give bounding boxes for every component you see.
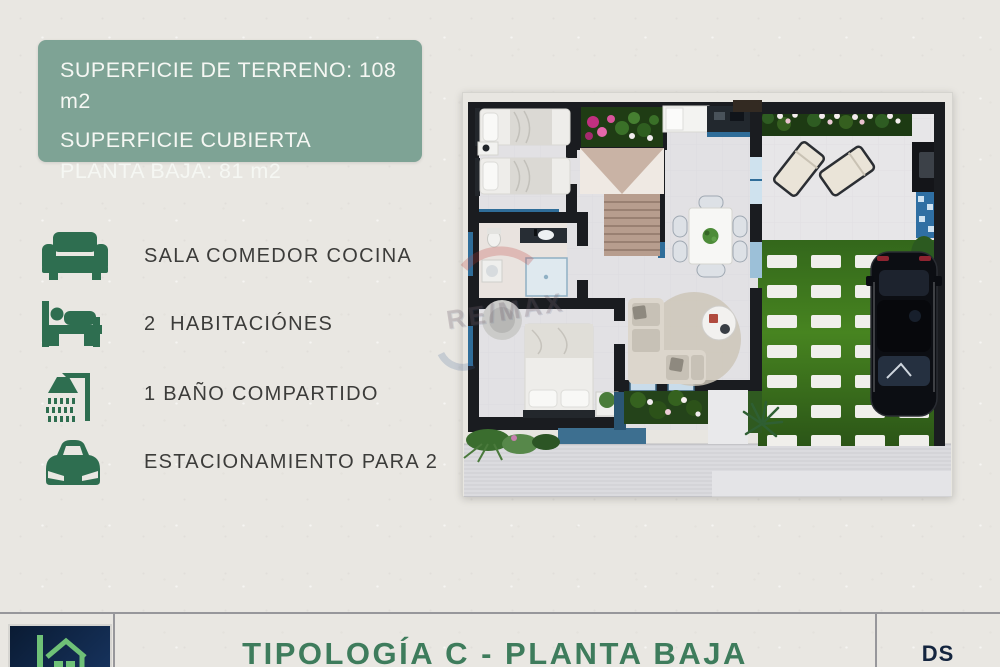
living-room <box>628 292 741 386</box>
floor-plan-image <box>462 92 953 497</box>
terrain-surface-text: SUPERFICIE DE TERRENO: 108 m2 <box>60 55 400 116</box>
footer-initials: DS <box>876 641 1000 667</box>
sidewalk <box>464 444 951 497</box>
company-logo <box>8 624 112 667</box>
feature-label: 2 HABITACIÓNES <box>144 313 333 336</box>
flyer-page: SUPERFICIE DE TERRENO: 108 m2 SUPERFICIE… <box>0 0 1000 667</box>
sofa-icon <box>40 230 116 282</box>
typology-title: TIPOLOGÍA C - PLANTA BAJA <box>114 636 876 667</box>
shower-icon <box>40 363 116 425</box>
covered-surface-text: SUPERFICIE CUBIERTA PLANTA BAJA: 81 m2 <box>60 125 400 186</box>
outdoor-counter <box>916 192 936 238</box>
feature-label: 1 BAÑO COMPARTIDO <box>144 383 379 406</box>
bed-icon <box>40 299 116 349</box>
footer-divider <box>0 612 1000 614</box>
feature-row-bathroom: 1 BAÑO COMPARTIDO <box>40 362 379 426</box>
feature-label: SALA COMEDOR COCINA <box>144 245 412 268</box>
feature-row-parking: ESTACIONAMIENTO PARA 2 <box>40 434 438 490</box>
house-logo-icon <box>29 631 91 667</box>
feature-label: ESTACIONAMIENTO PARA 2 <box>144 451 438 474</box>
interior-planter <box>581 107 663 147</box>
car-icon <box>40 437 116 487</box>
floor-plan-rendering <box>462 92 953 497</box>
feature-row-bedrooms: 2 HABITACIÓNES <box>40 296 333 352</box>
parked-car <box>866 252 942 416</box>
surface-info-box: SUPERFICIE DE TERRENO: 108 m2 SUPERFICIE… <box>38 40 422 162</box>
feature-row-living: SALA COMEDOR COCINA <box>40 228 412 284</box>
